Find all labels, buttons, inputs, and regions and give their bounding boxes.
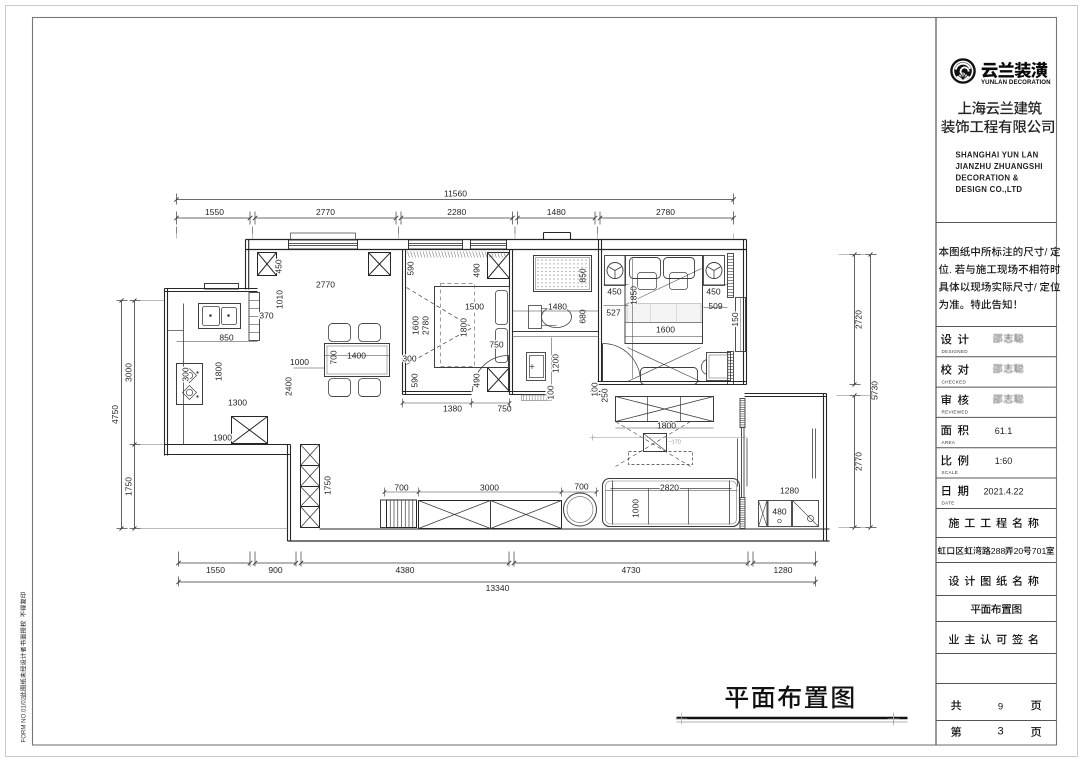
svg-text:FORM NO.01/02: FORM NO.01/02: [21, 696, 28, 742]
svg-text:1800: 1800: [214, 362, 224, 381]
svg-text:1600: 1600: [656, 325, 675, 335]
svg-text:300: 300: [402, 354, 416, 364]
svg-text:1900: 1900: [213, 433, 232, 443]
svg-text:450: 450: [607, 287, 621, 297]
svg-text:1600: 1600: [411, 316, 421, 335]
svg-text:1850: 1850: [629, 286, 639, 305]
svg-text:2280: 2280: [447, 207, 466, 217]
svg-text:680: 680: [578, 309, 588, 323]
svg-text:150: 150: [730, 312, 740, 326]
svg-text:300: 300: [181, 367, 191, 381]
svg-text:3000: 3000: [124, 363, 134, 382]
svg-text:DECORATION &: DECORATION &: [956, 174, 1019, 183]
svg-text:1550: 1550: [206, 565, 225, 575]
svg-text:61.1: 61.1: [995, 426, 1013, 436]
svg-text:1280: 1280: [774, 565, 793, 575]
svg-text:700: 700: [574, 482, 588, 492]
svg-text:509: 509: [708, 301, 722, 311]
svg-text:2770: 2770: [316, 280, 335, 290]
svg-text:1500: 1500: [465, 302, 484, 312]
svg-text:2780: 2780: [421, 316, 431, 335]
svg-text:527: 527: [606, 308, 620, 318]
svg-text:1750: 1750: [124, 477, 134, 496]
svg-text:DESIGNED: DESIGNED: [942, 349, 969, 354]
svg-text:701: 701: [1032, 546, 1047, 556]
svg-text:1000: 1000: [290, 357, 309, 367]
svg-text:2770: 2770: [854, 452, 864, 471]
svg-text:SCALE: SCALE: [942, 470, 959, 475]
svg-text:590: 590: [410, 373, 420, 387]
svg-text:1:60: 1:60: [995, 456, 1013, 466]
svg-text:2400: 2400: [284, 377, 294, 396]
svg-text:1200: 1200: [551, 354, 561, 373]
svg-text:1800: 1800: [657, 421, 676, 431]
svg-text:850: 850: [219, 333, 233, 343]
svg-text:.: .: [949, 265, 952, 276]
svg-text:288: 288: [991, 546, 1006, 556]
svg-text:JIANZHU ZHUANGSHI: JIANZHU ZHUANGSHI: [956, 162, 1043, 171]
svg-text:3000: 3000: [480, 483, 499, 493]
svg-text:9: 9: [998, 702, 1003, 713]
svg-text:590: 590: [406, 261, 416, 275]
svg-text:370: 370: [259, 311, 273, 321]
svg-text:/: /: [1034, 283, 1037, 294]
svg-text:750: 750: [489, 340, 503, 350]
svg-text:850: 850: [578, 268, 588, 282]
svg-text:480: 480: [772, 507, 786, 517]
svg-text:DATE: DATE: [942, 501, 955, 506]
svg-text:1480: 1480: [548, 302, 567, 312]
svg-text:20: 20: [1014, 546, 1024, 556]
svg-text:450: 450: [706, 287, 720, 297]
svg-text:100: 100: [546, 385, 556, 399]
svg-text:4730: 4730: [622, 565, 641, 575]
svg-text:1800: 1800: [459, 318, 469, 337]
svg-text:1010: 1010: [275, 290, 285, 309]
svg-text:CHECKED: CHECKED: [942, 379, 967, 384]
svg-text:4380: 4380: [396, 565, 415, 575]
svg-text:490: 490: [472, 373, 482, 387]
svg-text:1000: 1000: [631, 499, 641, 518]
svg-text:/: /: [1045, 248, 1048, 259]
svg-text:4750: 4750: [110, 405, 120, 424]
svg-text:1300: 1300: [228, 398, 247, 408]
svg-text:700: 700: [329, 350, 339, 364]
svg-text:1750: 1750: [323, 476, 333, 495]
svg-text:~170: ~170: [669, 440, 681, 446]
svg-text:1280: 1280: [780, 486, 799, 496]
svg-text:2780: 2780: [656, 207, 675, 217]
svg-text:490: 490: [472, 263, 482, 277]
svg-text:DESIGN CO.,LTD: DESIGN CO.,LTD: [956, 185, 1023, 194]
svg-text:13340: 13340: [486, 583, 510, 593]
svg-text:AREA: AREA: [942, 440, 956, 445]
svg-text:2820: 2820: [660, 483, 679, 493]
svg-text:1480: 1480: [547, 207, 566, 217]
svg-text:YUNLAN DECORATION: YUNLAN DECORATION: [981, 79, 1051, 86]
svg-text:11560: 11560: [444, 189, 467, 199]
svg-text:100: 100: [590, 382, 600, 396]
svg-text:1550: 1550: [205, 207, 224, 217]
svg-text:2770: 2770: [316, 207, 335, 217]
svg-text:3: 3: [997, 726, 1003, 738]
svg-text:1380: 1380: [443, 404, 462, 414]
svg-text:SHANGHAI YUN LAN: SHANGHAI YUN LAN: [956, 151, 1039, 160]
svg-text:5730: 5730: [870, 381, 880, 400]
svg-text:700: 700: [394, 483, 408, 493]
svg-text:2021.4.22: 2021.4.22: [983, 487, 1023, 497]
svg-text:REVIEWED: REVIEWED: [942, 410, 969, 415]
svg-text:2720: 2720: [854, 310, 864, 329]
svg-text:250: 250: [600, 388, 610, 402]
svg-text:900: 900: [268, 565, 282, 575]
svg-text:450: 450: [274, 259, 284, 273]
